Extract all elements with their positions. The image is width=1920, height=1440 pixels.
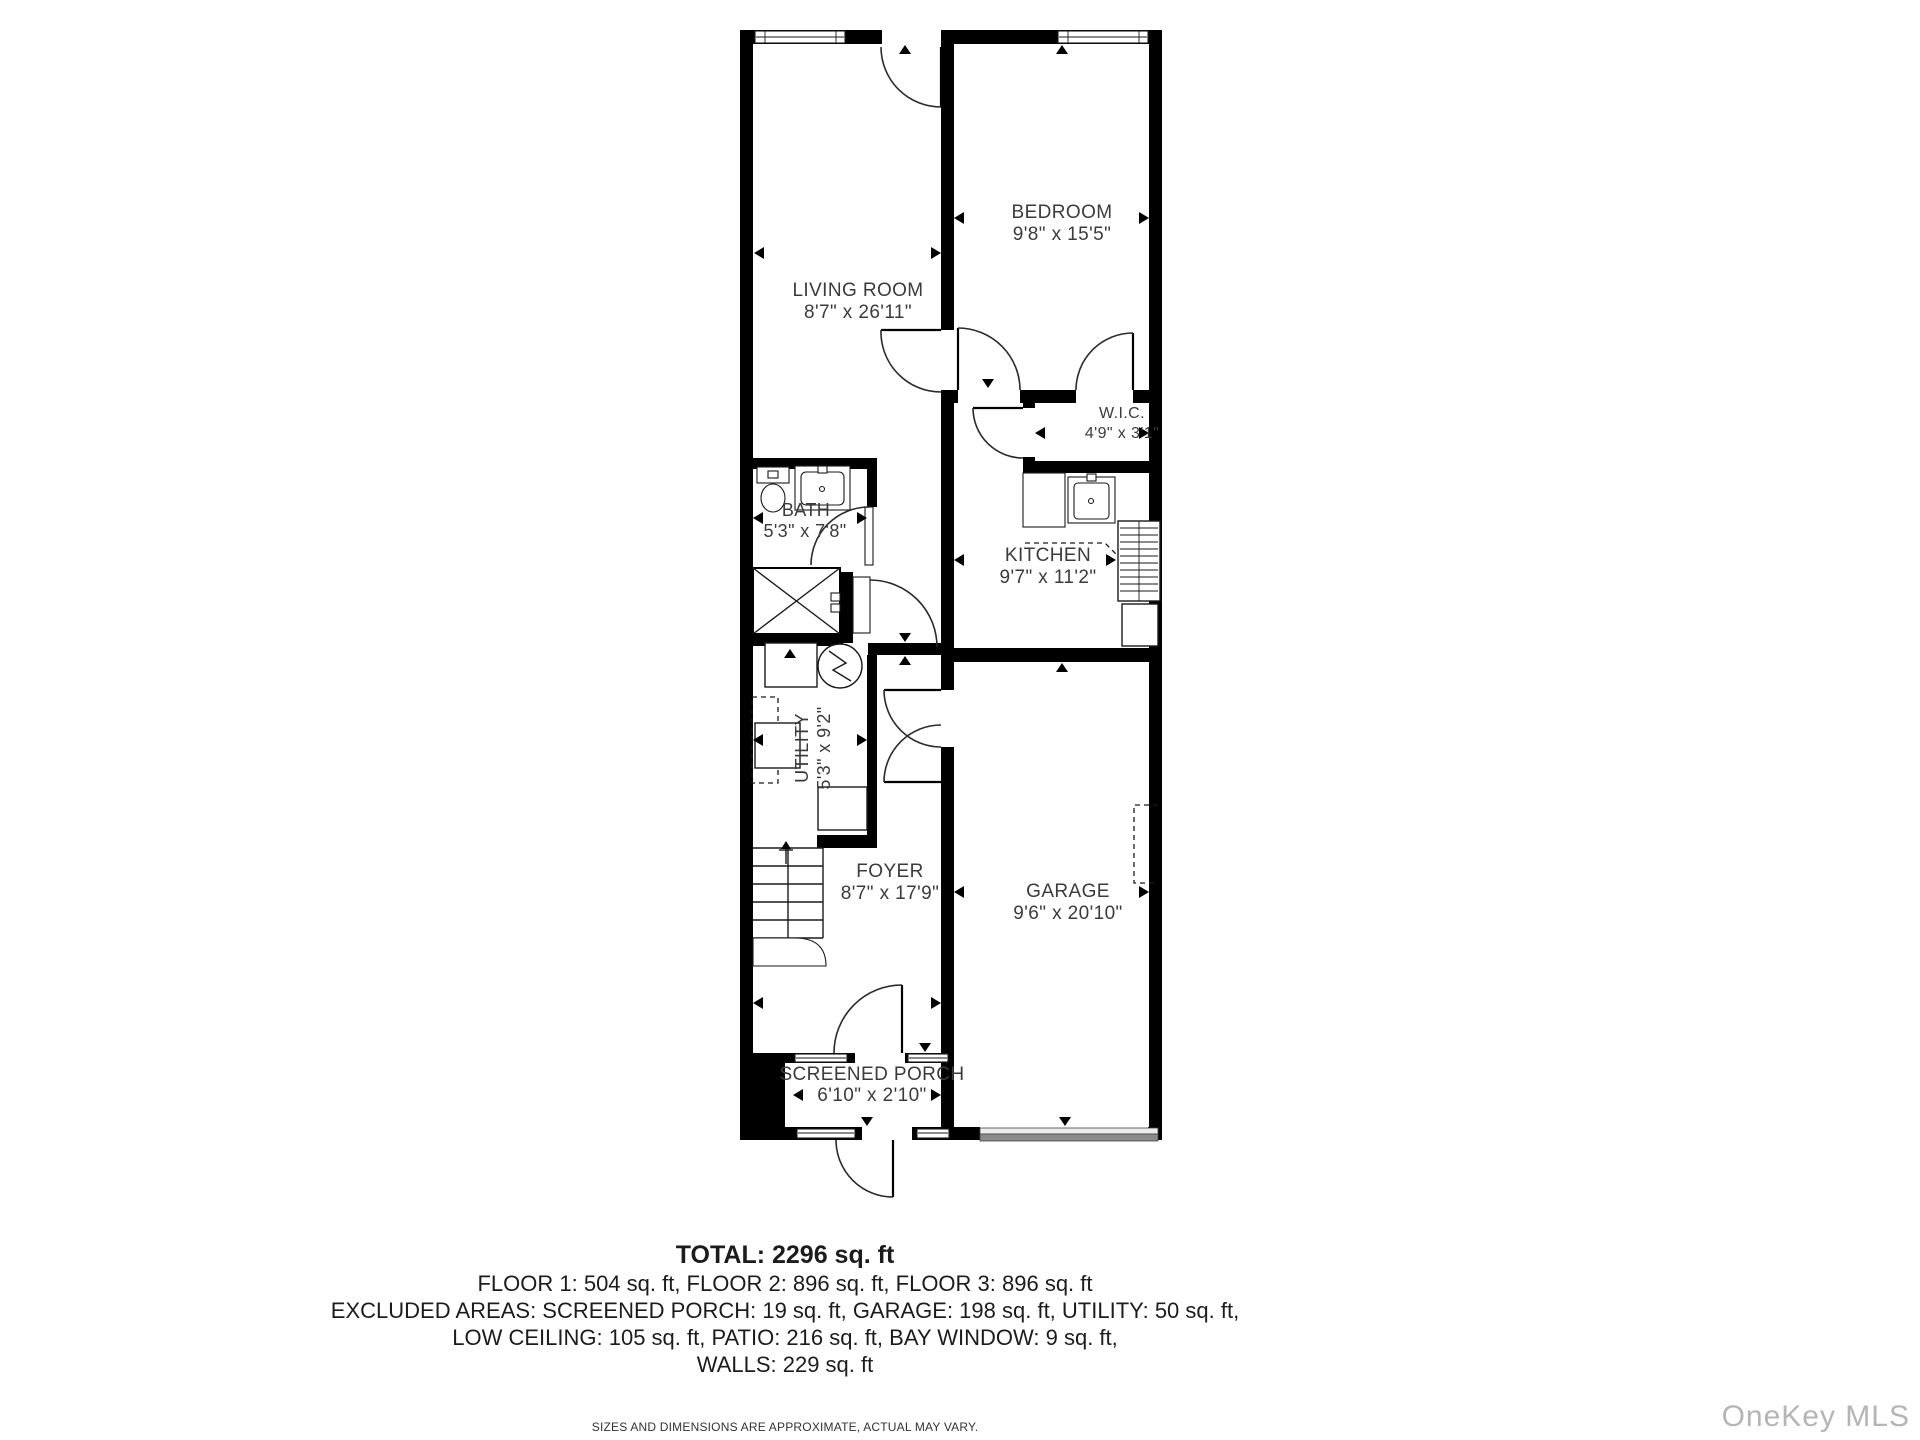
room-label-foyer: FOYER <box>856 861 923 882</box>
staircase <box>753 841 826 966</box>
summary-excluded-1: EXCLUDED AREAS: SCREENED PORCH: 19 sq. f… <box>235 1297 1335 1324</box>
kitchen-counter-2 <box>1122 604 1158 646</box>
door-foyer-garage-lower <box>884 725 941 782</box>
shower-icon <box>753 568 840 634</box>
room-dims-wic: 4'9" x 3'1" <box>1085 425 1159 442</box>
door-living-room-hall <box>881 330 941 392</box>
bedroom-window <box>1058 31 1148 43</box>
stove-icon <box>1118 521 1160 601</box>
room-label-wic: W.I.C. <box>1099 405 1145 422</box>
summary-walls: WALLS: 229 sq. ft <box>235 1351 1335 1378</box>
room-dims-kitchen: 9'7" x 11'2" <box>999 567 1096 588</box>
utility-box-2 <box>818 787 867 830</box>
room-label-living-room: LIVING ROOM <box>792 280 923 301</box>
area-summary: TOTAL: 2296 sq. ft FLOOR 1: 504 sq. ft, … <box>235 1240 1335 1434</box>
door-bedroom-right <box>1076 333 1133 390</box>
garage-door <box>980 1128 1158 1141</box>
room-label-utility: UTILITY <box>792 713 812 783</box>
room-dims-living-room: 8'7" x 26'11" <box>804 302 912 323</box>
washer-icon <box>818 644 862 688</box>
floor-plan: LIVING ROOM 8'7" x 26'11" BEDROOM 9'8" x… <box>0 0 1920 1440</box>
summary-disclaimer: SIZES AND DIMENSIONS ARE APPROXIMATE, AC… <box>235 1420 1335 1434</box>
living-room-window <box>755 31 845 43</box>
door-foyer-porch <box>834 985 902 1053</box>
room-dims-bedroom: 9'8" x 15'5" <box>1013 224 1111 245</box>
door-wic <box>973 408 1023 458</box>
room-dims-utility: 5'3" x 9'2" <box>814 706 834 789</box>
dryer-icon <box>765 643 817 687</box>
door-porch-exit <box>836 1140 893 1197</box>
room-label-bedroom: BEDROOM <box>1012 202 1113 223</box>
door-hall-foyer <box>853 577 937 647</box>
room-dims-garage: 9'6" x 20'10" <box>1013 903 1122 924</box>
door-living-room-top <box>881 47 941 107</box>
kitchen-sink-icon <box>1068 474 1115 523</box>
door-foyer-garage-upper <box>884 690 941 747</box>
room-label-garage: GARAGE <box>1026 881 1110 902</box>
summary-excluded-2: LOW CEILING: 105 sq. ft, PATIO: 216 sq. … <box>235 1324 1335 1351</box>
room-label-screened-porch: SCREENED PORCH <box>779 1064 964 1085</box>
room-label-bath: BATH <box>782 500 830 520</box>
room-dims-screened-porch: 6'10" x 2'10" <box>817 1085 926 1106</box>
room-dims-bath: 5'3" x 7'8" <box>763 521 846 541</box>
summary-total: TOTAL: 2296 sq. ft <box>235 1240 1335 1270</box>
room-label-kitchen: KITCHEN <box>1005 545 1091 566</box>
room-dims-foyer: 8'7" x 17'9" <box>841 883 939 904</box>
summary-floors: FLOOR 1: 504 sq. ft, FLOOR 2: 896 sq. ft… <box>235 1270 1335 1297</box>
mls-watermark: OneKey MLS <box>1722 1400 1910 1434</box>
floorplan-page: LIVING ROOM 8'7" x 26'11" BEDROOM 9'8" x… <box>0 0 1920 1440</box>
stairs-up-arrow-icon <box>779 841 793 864</box>
